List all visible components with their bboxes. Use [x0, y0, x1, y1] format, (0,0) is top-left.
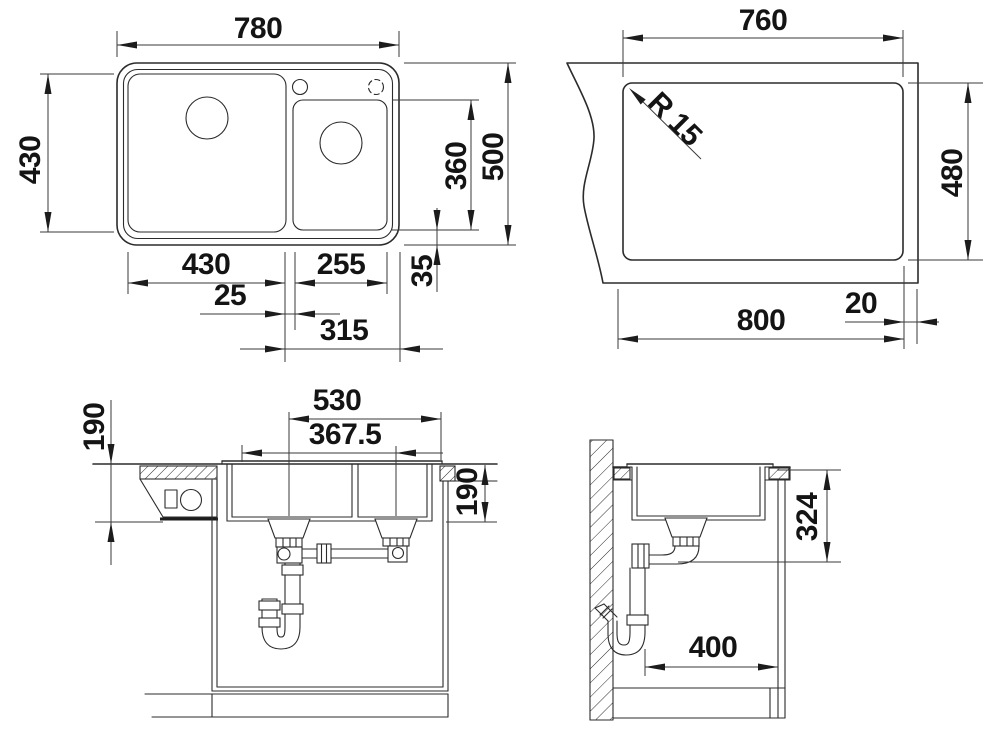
side-section-view: 324 400 [590, 440, 841, 720]
plan-sink-rim-inner [124, 70, 393, 239]
dim-label-190-left: 190 [78, 403, 111, 452]
dim-front-bowl-depth-right: 190 [446, 465, 497, 522]
dim-cutout-width: 760 [623, 4, 903, 77]
front-countertop-hatch-left [140, 466, 217, 479]
dim-plan-rear-gap: 35 [406, 208, 441, 292]
dim-plan-right-section: 315 [240, 314, 443, 353]
dim-label-430-left: 430 [14, 136, 47, 185]
dim-label-780: 780 [234, 12, 283, 45]
front-control-knob [181, 490, 202, 511]
dim-cutout-radius: R 15 [629, 86, 708, 159]
plan-drain-right [320, 122, 362, 164]
cutout-countertop-outline [567, 63, 918, 283]
dim-label-324: 324 [791, 492, 824, 541]
front-section-view: 530 367.5 190 190 [78, 384, 497, 717]
dim-plan-right-bowl-width: 255 [295, 248, 387, 287]
dim-plan-left-bowl-width: 430 [128, 248, 285, 287]
dim-label-190-right: 190 [451, 468, 484, 517]
side-countertop [613, 467, 790, 480]
plan-tap-hole-optional [369, 80, 384, 95]
dim-label-315: 315 [320, 314, 369, 347]
dim-label-530: 530 [313, 384, 362, 417]
side-countertop-hatch-left [614, 468, 630, 479]
dim-label-360: 360 [440, 142, 473, 191]
dim-label-367-5: 367.5 [309, 418, 382, 451]
side-drain [665, 518, 707, 537]
dim-front-bowl-depth-left: 190 [78, 400, 163, 565]
side-pipe-coupling [627, 615, 648, 625]
dim-label-760: 760 [739, 4, 788, 37]
dim-label-35: 35 [406, 255, 439, 287]
front-pipe-coupling [317, 544, 331, 563]
plan-view: 780 430 360 500 35 [14, 12, 516, 362]
front-drain-right [375, 519, 417, 538]
side-wall [590, 440, 613, 720]
dim-label-20: 20 [845, 287, 877, 320]
sink-dimension-drawing: 780 430 360 500 35 [0, 0, 1000, 743]
dim-cutout-depth: 480 [908, 83, 983, 260]
front-plumbing [259, 519, 417, 649]
plan-tap-hole [293, 80, 308, 95]
cutout-view: 760 480 R 15 800 20 [567, 4, 983, 349]
side-pipe-nut [632, 544, 649, 568]
dim-cutout-edge-distance: 20 [845, 287, 939, 344]
dim-label-480: 480 [936, 149, 969, 198]
drawing-canvas: 780 430 360 500 35 [0, 0, 1000, 743]
plan-right-bowl [293, 100, 387, 230]
dim-label-25: 25 [214, 279, 246, 312]
dim-label-430-bottom: 430 [182, 248, 231, 281]
front-trap-coupling-upper [259, 601, 280, 610]
dim-plan-overall-width: 780 [117, 12, 399, 57]
dim-front-drain-offset: 367.5 [242, 418, 443, 516]
plan-drain-left [186, 97, 228, 139]
dim-label-400: 400 [689, 631, 738, 664]
plan-left-bowl [128, 74, 286, 232]
front-control-switch [165, 490, 177, 508]
dim-label-r15: R 15 [641, 86, 708, 153]
side-sink-section [627, 464, 773, 520]
dim-plan-left-bowl-depth: 430 [14, 74, 114, 232]
front-trap-coupling-lower [259, 618, 280, 627]
dim-side-clearance: 400 [645, 631, 778, 676]
front-control-box [140, 479, 218, 519]
front-sink-section [222, 461, 442, 521]
front-drain-left [268, 519, 310, 538]
dim-label-255: 255 [317, 248, 366, 281]
front-cabinet [145, 480, 448, 717]
dim-label-500: 500 [477, 133, 510, 182]
dim-label-800: 800 [737, 304, 786, 337]
plan-sink-outline [117, 63, 399, 245]
